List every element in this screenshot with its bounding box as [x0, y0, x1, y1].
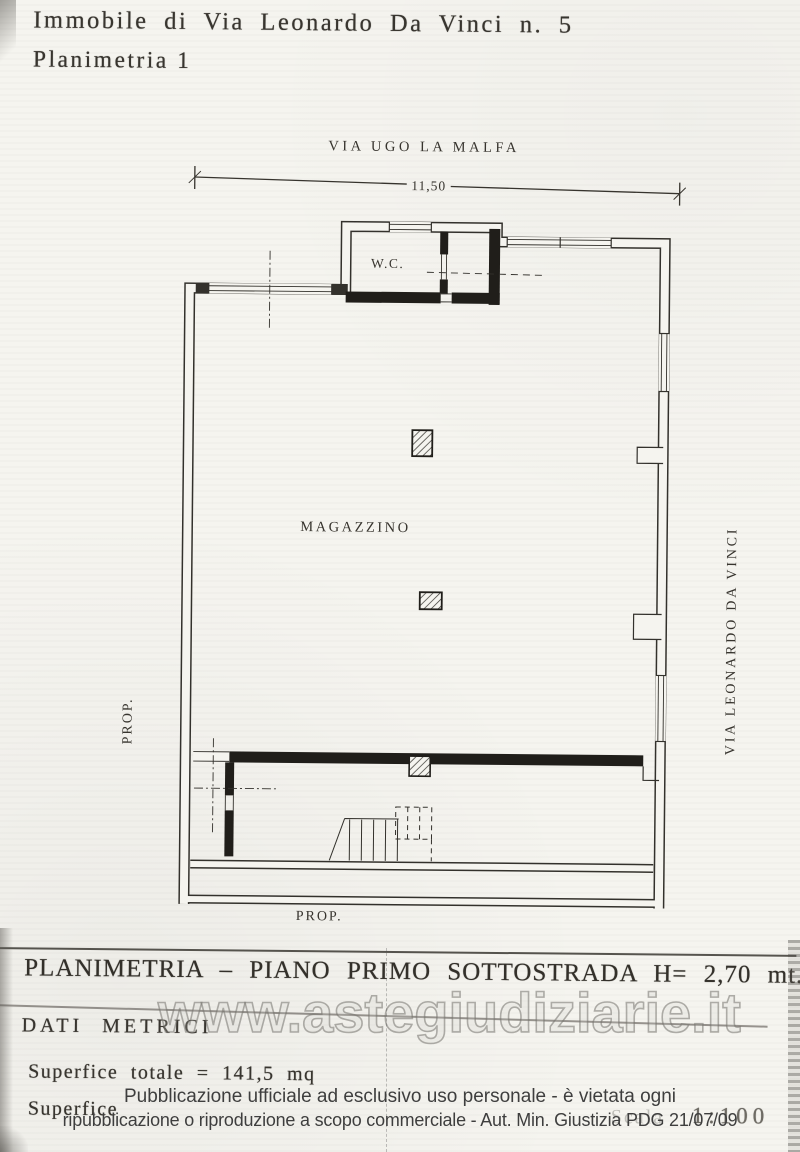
- pillar-in-wall: [409, 756, 430, 776]
- window-right-upper: [659, 333, 670, 391]
- window-wc-top: [389, 222, 431, 233]
- room-label-magazzino: MAGAZZINO: [300, 519, 410, 536]
- disclaimer-line-1: Pubblicazione ufficiale ad esclusivo uso…: [0, 1086, 800, 1108]
- staircase: [329, 806, 432, 861]
- scan-edge-left: [0, 928, 13, 1152]
- interior-vertical-wall: [224, 762, 234, 856]
- pillar-upper: [412, 430, 432, 456]
- scan-edge-top-left: [0, 0, 16, 72]
- window-top-left: [196, 283, 348, 295]
- plan-drawing: VIA UGO LA MALFA 11,50: [119, 136, 745, 928]
- window-top-right: [507, 237, 611, 248]
- watermark-text: www.astegiudiziarie.it: [158, 980, 741, 1045]
- scan-edge-right: [788, 940, 800, 1152]
- window-right-lower: [655, 675, 666, 741]
- paper-fold-line: [386, 948, 387, 1152]
- axis-markers: [194, 250, 284, 833]
- street-label-top: VIA UGO LA MALFA: [328, 138, 520, 156]
- outer-walls: [184, 225, 665, 909]
- scan-edge-bottom-left: [0, 1126, 28, 1152]
- prop-label-left: PROP.: [120, 697, 135, 744]
- surface-total-text: Superfice totale = 141,5 mq: [28, 1060, 316, 1086]
- pillar-middle: [420, 592, 442, 609]
- floor-plan: VIA UGO LA MALFA 11,50: [0, 0, 800, 949]
- dimension-value: 11,50: [411, 178, 446, 193]
- interior-thick-wall: [193, 751, 659, 781]
- prop-label-bottom: PROP.: [296, 909, 343, 924]
- disclaimer-line-2: ripubblicazione o riproduzione a scopo c…: [12, 1109, 788, 1131]
- room-label-wc: W.C.: [371, 256, 404, 271]
- scanned-planimetry-page: Immobile di Via Leonardo Da Vinci n. 5 P…: [0, 0, 800, 1152]
- street-label-right: VIA LEONARDO DA VINCI: [723, 527, 740, 756]
